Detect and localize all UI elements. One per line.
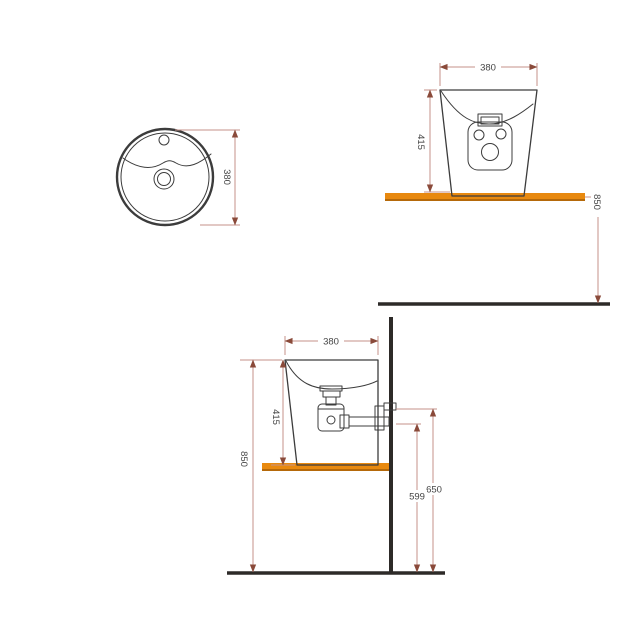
dimension-label-outlet-height: 650 — [426, 485, 442, 496]
drain-panel — [468, 122, 512, 170]
shelf-edge — [385, 199, 585, 201]
faucet-hole — [159, 135, 169, 145]
dimension-label-height: 415 — [270, 409, 281, 425]
trap-detail — [327, 416, 335, 424]
basin-front-edge — [123, 154, 211, 167]
trap-nut-top — [323, 391, 340, 397]
waste-pipe — [349, 417, 389, 426]
front-view: 380 415 850 — [378, 60, 610, 304]
dimension-label-floor-height: 850 — [238, 451, 249, 467]
mount-hole-right — [496, 129, 506, 139]
drain-inner-ring — [158, 173, 171, 186]
shelf — [262, 463, 391, 470]
technical-drawing: 380 380 415 850 — [0, 0, 640, 640]
dimension-label-floor-height: 850 — [591, 194, 602, 210]
overflow-hole — [482, 144, 499, 161]
basin-inner-rim — [121, 133, 209, 221]
dimension-label-outlet-center-height: 599 — [409, 492, 425, 503]
dimension-label-height: 415 — [415, 134, 426, 150]
dimension-label-width: 380 — [480, 63, 496, 74]
dimension-label-diameter: 380 — [221, 169, 232, 185]
shelf-edge — [262, 469, 391, 471]
basin-body — [440, 90, 537, 196]
basin-rim-curve — [441, 91, 533, 124]
drawing-canvas: 380 380 415 850 — [0, 0, 640, 640]
basin-rim-curve — [286, 361, 377, 389]
side-view: 380 415 850 650 599 — [227, 317, 445, 574]
basin-outer-rim — [117, 129, 213, 225]
top-view: 380 — [117, 129, 240, 225]
mount-hole-left — [474, 130, 484, 140]
basin-body — [285, 360, 378, 465]
dimension-label-width: 380 — [323, 337, 339, 348]
